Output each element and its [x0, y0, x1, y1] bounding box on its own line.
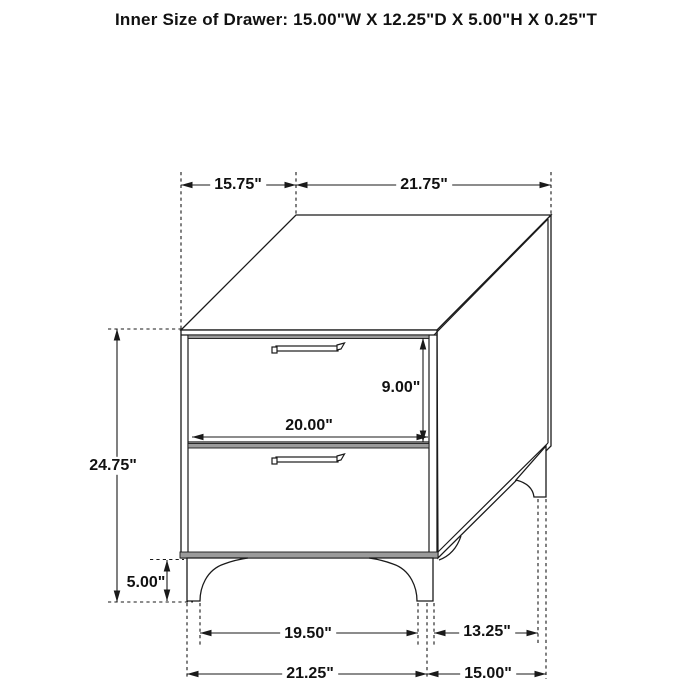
dimension-diagram: Inner Size of Drawer: 15.00"W X 12.25"D … [0, 0, 700, 700]
dim-label-top-depth: 15.75" [210, 176, 266, 194]
bottom-rail-band [180, 552, 438, 558]
dim-label-drawer-front-width: 20.00" [281, 417, 337, 435]
dim-label-overall-height: 24.75" [85, 457, 141, 475]
front-right-leg [369, 558, 433, 601]
dim-label-side-base-depth: 15.00" [460, 665, 516, 683]
dim-label-front-leg-inner-span: 19.50" [280, 625, 336, 643]
dim-label-front-base-width: 21.25" [282, 665, 338, 683]
front-left-leg [187, 558, 248, 601]
dim-label-drawer-opening-height: 9.00" [378, 379, 425, 397]
dim-label-side-leg-span: 13.25" [459, 623, 515, 641]
nightstand-drawing [0, 0, 700, 700]
cabinet [180, 215, 551, 601]
mid-rail-band [188, 444, 429, 449]
top-rail-band [188, 335, 429, 339]
dim-label-top-width: 21.75" [396, 176, 452, 194]
dim-label-leg-height: 5.00" [123, 574, 170, 592]
